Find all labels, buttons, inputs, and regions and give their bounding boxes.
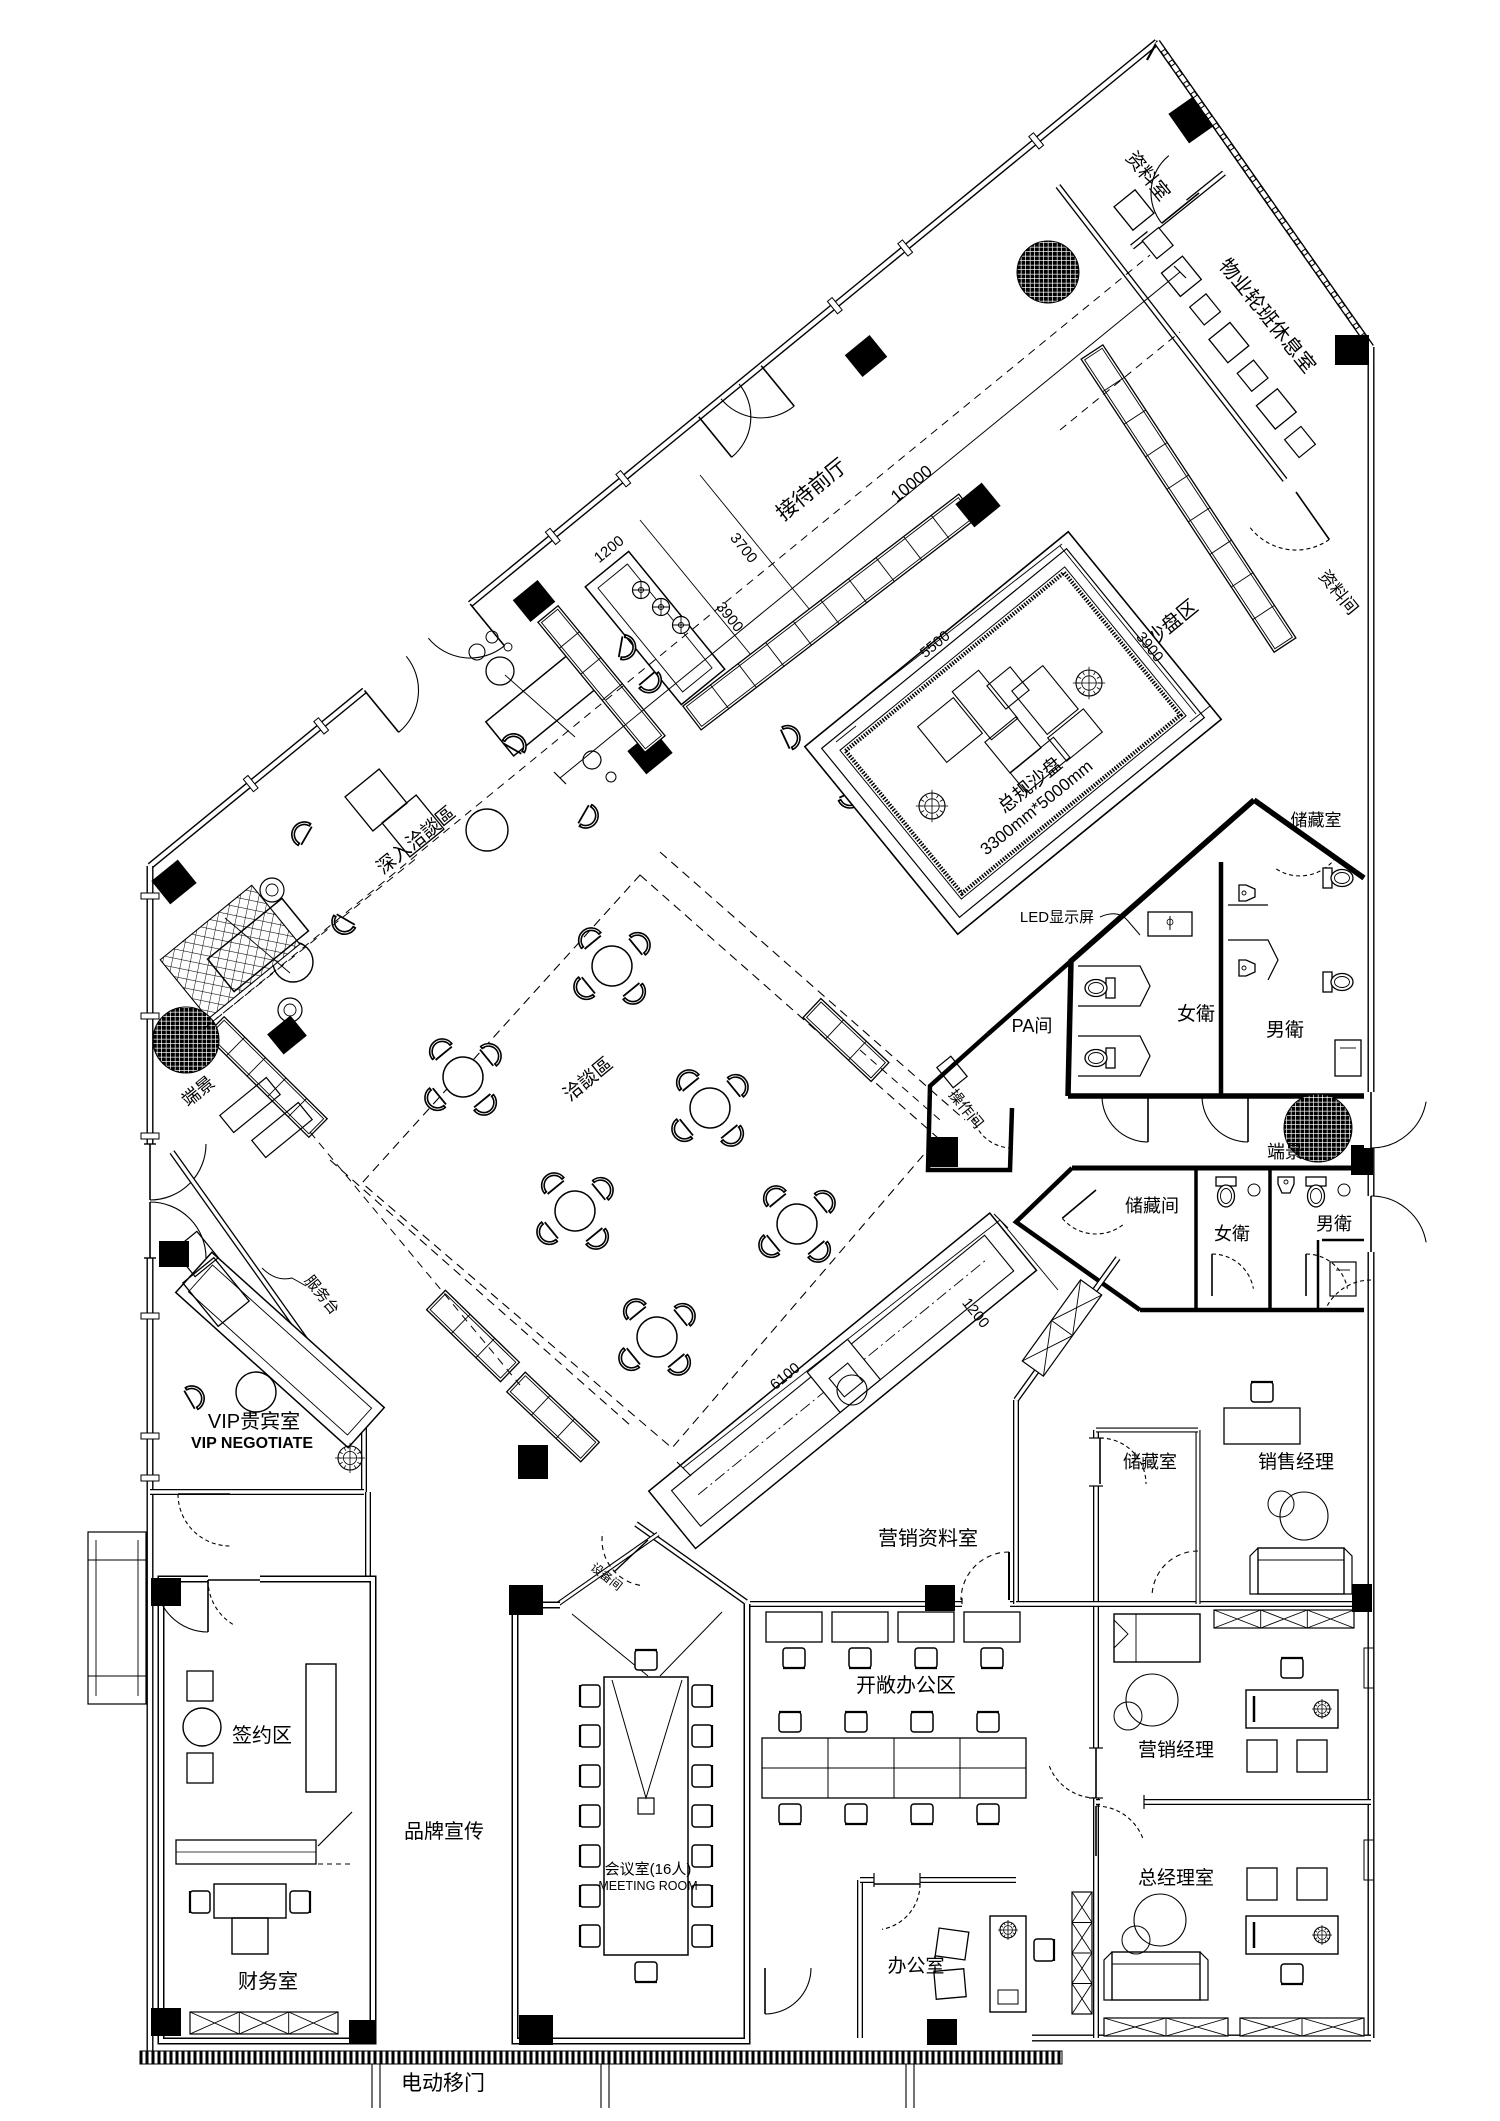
- svg-text:MEETING ROOM: MEETING ROOM: [598, 1879, 697, 1893]
- svg-text:男衛: 男衛: [1316, 1214, 1352, 1234]
- svg-text:营销资料室: 营销资料室: [878, 1527, 978, 1550]
- svg-text:签约区: 签约区: [232, 1724, 292, 1747]
- svg-text:LED显示屏: LED显示屏: [1020, 909, 1094, 926]
- svg-text:电动移门: 电动移门: [401, 2072, 485, 2095]
- svg-text:女衛: 女衛: [1214, 1224, 1250, 1244]
- svg-text:储藏间: 储藏间: [1125, 1196, 1179, 1216]
- svg-text:VIP NEGOTIATE: VIP NEGOTIATE: [191, 1435, 313, 1452]
- svg-text:销售经理: 销售经理: [1258, 1451, 1334, 1473]
- svg-text:储藏室: 储藏室: [1291, 811, 1342, 830]
- svg-text:会议室(16人): 会议室(16人): [605, 1861, 692, 1878]
- svg-text:储藏室: 储藏室: [1123, 1452, 1177, 1472]
- svg-text:男衛: 男衛: [1266, 1019, 1304, 1041]
- svg-text:品牌宣传: 品牌宣传: [404, 1820, 484, 1843]
- svg-text:VIP贵宾室: VIP贵宾室: [208, 1410, 300, 1433]
- svg-text:办公室: 办公室: [887, 1955, 944, 1977]
- svg-text:总经理室: 总经理室: [1138, 1867, 1214, 1889]
- svg-text:PA间: PA间: [1012, 1016, 1053, 1036]
- svg-text:开敞办公区: 开敞办公区: [856, 1674, 956, 1697]
- svg-text:女衛: 女衛: [1177, 1003, 1215, 1025]
- svg-text:端景: 端景: [1267, 1142, 1303, 1162]
- svg-text:营销经理: 营销经理: [1138, 1739, 1214, 1761]
- svg-text:财务室: 财务室: [238, 1970, 298, 1993]
